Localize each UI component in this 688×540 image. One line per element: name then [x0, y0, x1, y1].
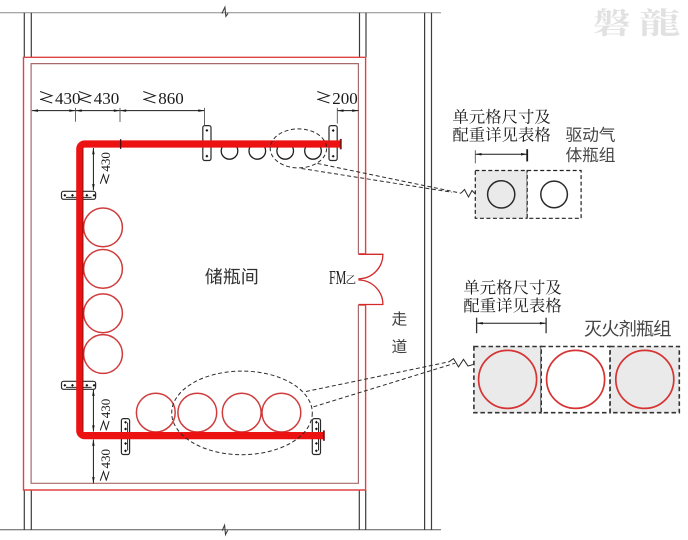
svg-text:860: 860: [158, 89, 184, 108]
svg-text:430: 430: [94, 89, 120, 108]
svg-text:FM: FM: [329, 266, 347, 289]
svg-text:430: 430: [98, 399, 113, 419]
svg-text:430: 430: [55, 89, 81, 108]
svg-text:430: 430: [98, 449, 113, 469]
svg-text:200: 200: [332, 89, 358, 108]
svg-text:430: 430: [98, 152, 113, 172]
